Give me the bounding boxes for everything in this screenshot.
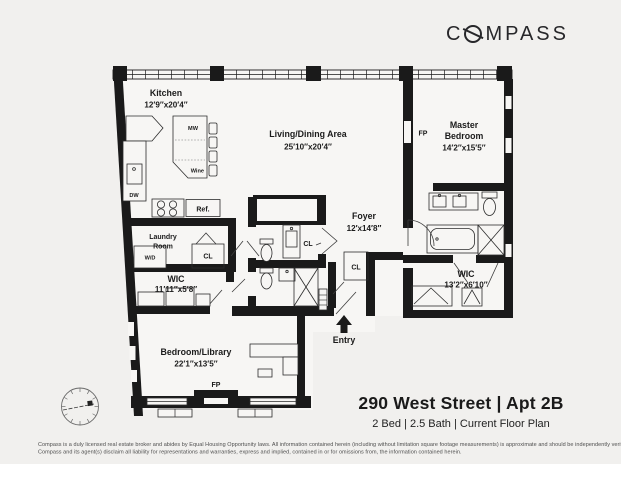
fireplace-label-master: FP <box>419 131 428 138</box>
fireplace-label-bedroom: FP <box>212 382 221 389</box>
bedroom-library-label: Bedroom/Library <box>161 347 232 357</box>
listing-info: 290 West Street | Apt 2B 2 Bed | 2.5 Bat… <box>330 393 592 430</box>
master-label-1: Master <box>450 120 479 130</box>
bedroom-library-dims: 22′1″x13′5″ <box>174 360 217 369</box>
bottom-margin <box>0 464 621 480</box>
kitchen-label: Kitchen <box>150 88 182 98</box>
kitchen-dims: 12′9″x20′4″ <box>144 101 187 110</box>
disclaimer: Compass is a duly licensed real estate b… <box>38 442 621 456</box>
wic-master-label: WIC <box>457 269 475 279</box>
living-dims: 25′10″x20′4″ <box>284 143 332 152</box>
living-label: Living/Dining Area <box>269 129 346 139</box>
wine-fridge-label: Wine <box>191 169 204 175</box>
disclaimer-line-1: Compass is a duly licensed real estate b… <box>38 442 621 448</box>
closet-label-foyer: CL <box>351 265 361 272</box>
entry-label: Entry <box>333 335 356 345</box>
wic-master-dims: 13′2″x6′10″ <box>444 281 487 290</box>
wic-small-dims: 11′11″x5′8″ <box>155 285 197 294</box>
washer-dryer-label: W/D <box>145 256 156 262</box>
dishwasher-label: DW <box>129 193 139 199</box>
floorplan-page: C MPASS <box>0 0 621 480</box>
closet-label-bath: CL <box>303 241 313 248</box>
laundry-label-1: Laundry <box>149 234 177 241</box>
disclaimer-line-2: Compass and its agent(s) disclaim all li… <box>38 450 462 456</box>
closet-label-laundry: CL <box>203 254 213 261</box>
wic-small-label: WIC <box>167 274 185 284</box>
foyer-label: Foyer <box>352 211 377 221</box>
listing-title: 290 West Street | Apt 2B <box>330 393 592 414</box>
refrigerator-label: Ref. <box>196 207 209 214</box>
compass-rose-icon <box>62 388 99 425</box>
laundry-label-2: Room <box>153 244 173 251</box>
foyer-dims: 12′x14′8″ <box>347 224 382 233</box>
listing-subtitle: 2 Bed | 2.5 Bath | Current Floor Plan <box>330 418 592 430</box>
master-dims: 14′2″x15′5″ <box>442 144 485 153</box>
master-label-2: Bedroom <box>445 131 484 141</box>
microwave-label: MW <box>188 126 199 132</box>
